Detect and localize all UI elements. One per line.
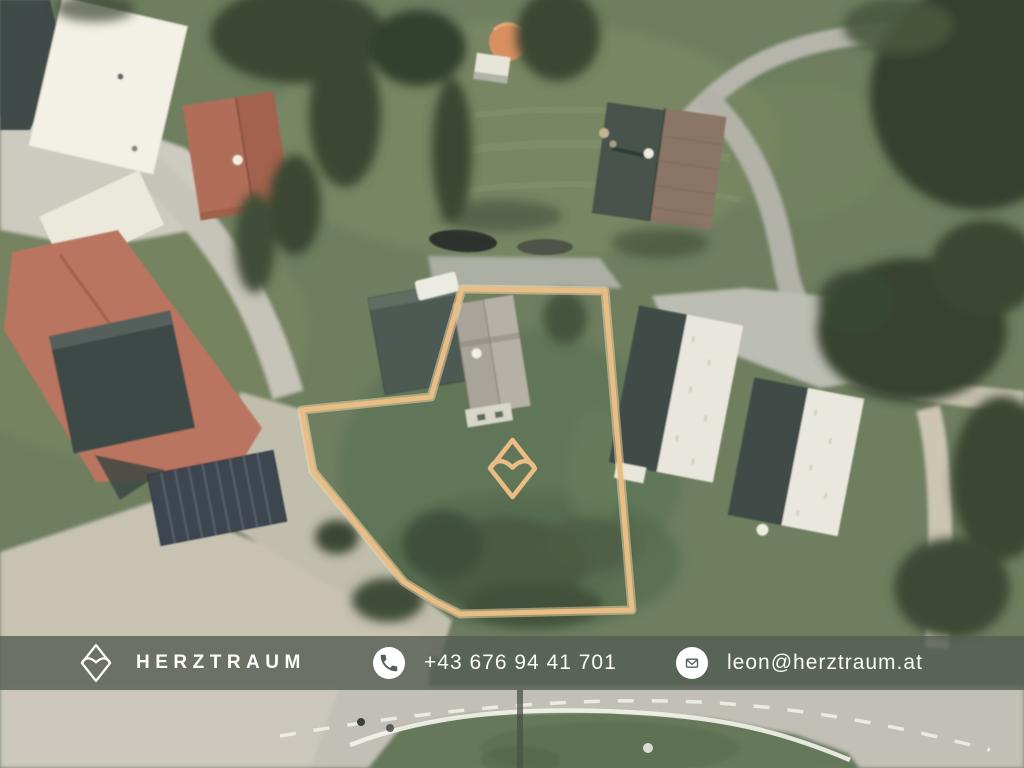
brand-name: HERZTRAUM	[136, 652, 306, 674]
email-address: leon@herztraum.at	[727, 651, 923, 675]
brand: HERZTRAUM	[80, 636, 306, 690]
brand-logo-icon	[80, 643, 112, 683]
footer-bar: HERZTRAUM +43 676 94 41 701 leon@herztra…	[0, 636, 1024, 690]
phone-number: +43 676 94 41 701	[424, 651, 617, 675]
envelope-icon	[676, 647, 708, 679]
phone-icon	[373, 647, 405, 679]
phone-contact[interactable]: +43 676 94 41 701	[373, 636, 617, 690]
property-listing-image: HERZTRAUM +43 676 94 41 701 leon@herztra…	[0, 0, 1024, 768]
email-contact[interactable]: leon@herztraum.at	[676, 636, 923, 690]
